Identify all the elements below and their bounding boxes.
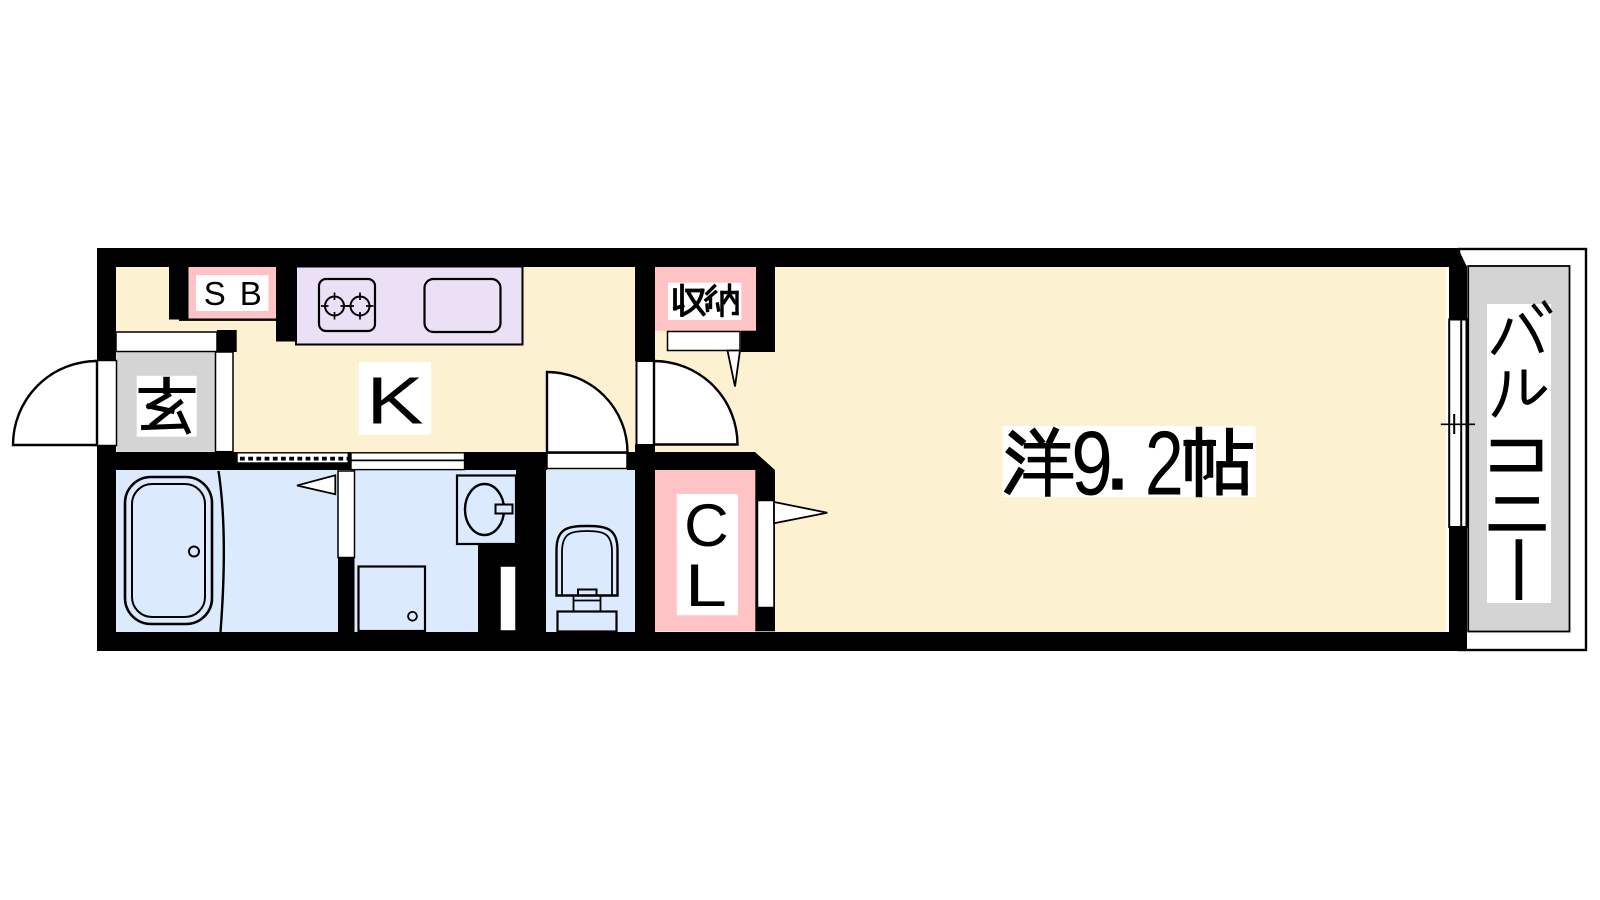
svg-text:L: L: [685, 551, 727, 619]
svg-text:B: B: [240, 275, 262, 312]
svg-text:9: 9: [1071, 413, 1113, 514]
svg-text:K: K: [366, 364, 423, 438]
svg-text:C: C: [684, 492, 729, 559]
svg-text:2: 2: [1145, 414, 1184, 515]
svg-text:S: S: [204, 275, 226, 312]
